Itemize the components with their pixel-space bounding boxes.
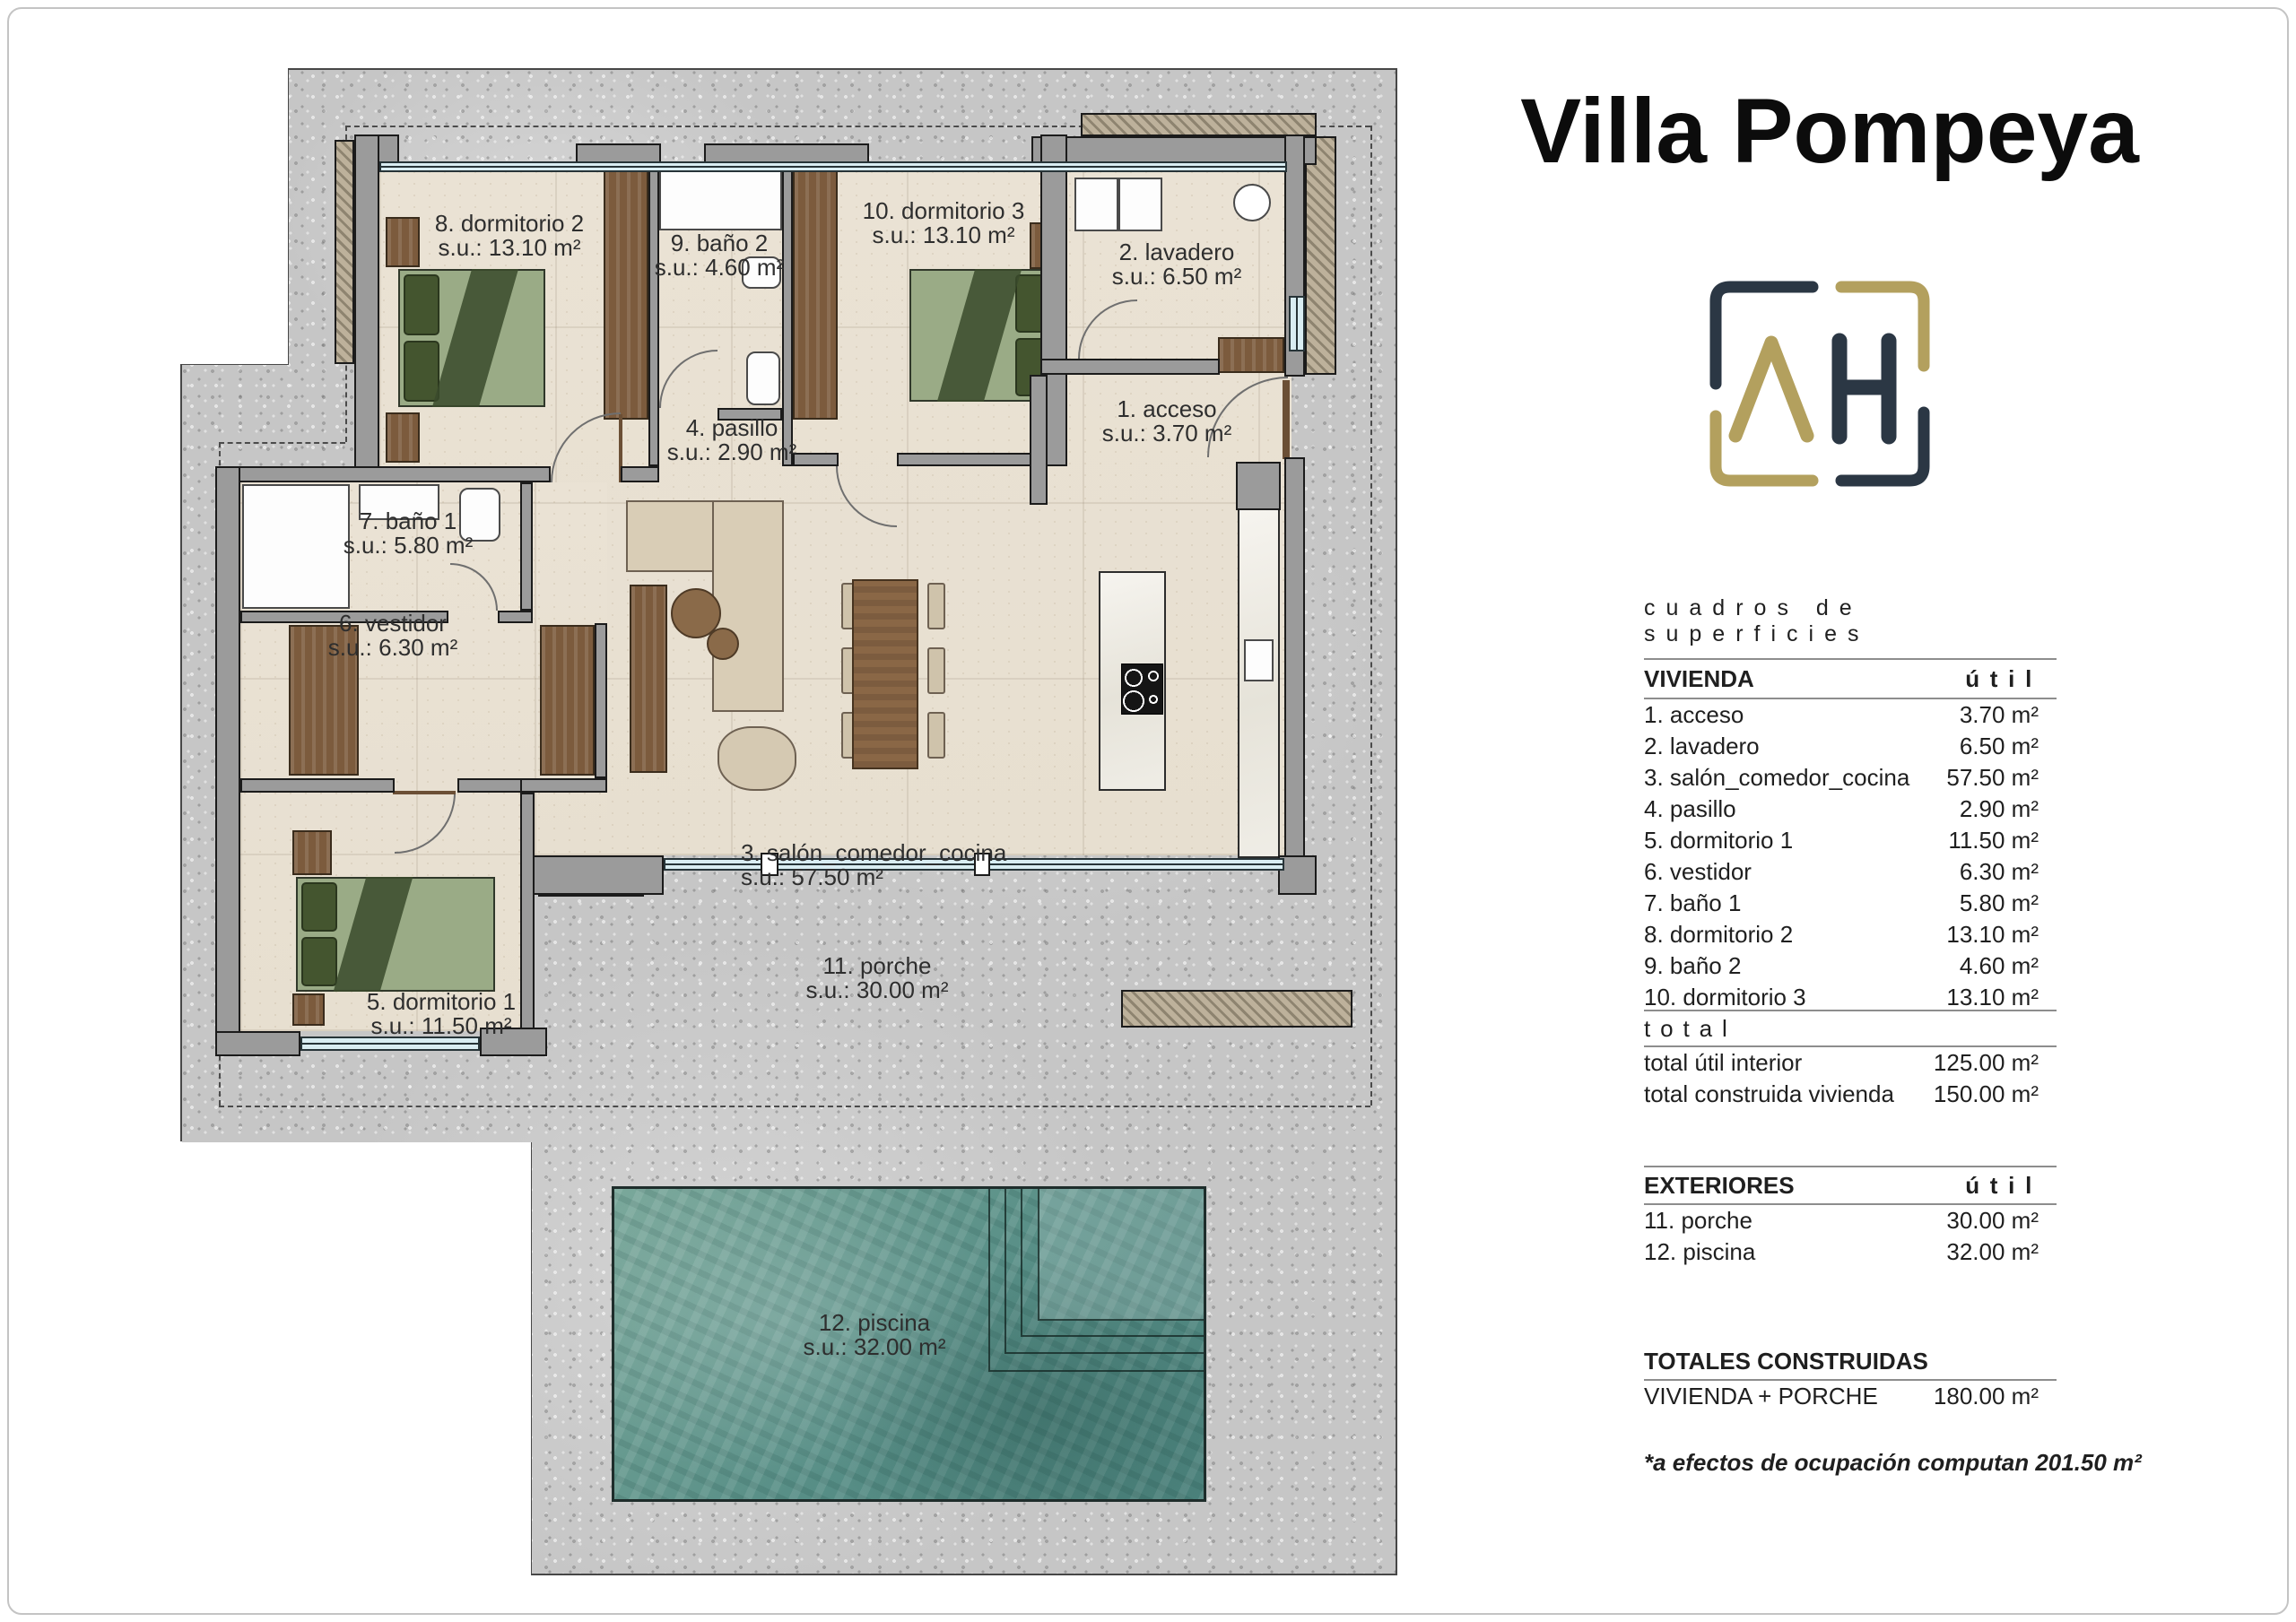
stone-hatch-band — [335, 140, 354, 364]
room-surface: s.u.: 3.70 m² — [1102, 421, 1232, 446]
vivienda-row: 3. salón_comedor_cocina57.50 m² — [1644, 762, 2057, 794]
door-leaf — [1283, 380, 1290, 459]
wall — [1284, 457, 1305, 859]
bed-runner — [334, 877, 413, 992]
sofa-chaise — [712, 500, 784, 712]
room-name: 9. baño 2 — [655, 231, 785, 256]
dining-chair — [927, 583, 945, 629]
room-name: 3. salón_comedor_cocina — [741, 841, 1006, 865]
util-column-header: útil — [1965, 1167, 2057, 1203]
vivienda-row-value: 5.80 m² — [1960, 888, 2057, 919]
wall — [1030, 375, 1048, 505]
laundry-sink — [1233, 184, 1271, 221]
bed-runner — [432, 269, 518, 407]
stone-hatch-band — [1081, 113, 1317, 136]
page-title: Villa Pompeya — [1471, 79, 2188, 184]
room-name: 5. dormitorio 1 — [367, 990, 516, 1014]
room-surface: s.u.: 13.10 m² — [863, 223, 1025, 247]
wall — [621, 466, 659, 482]
totales-header: TOTALES CONSTRUIDAS — [1644, 1343, 2057, 1381]
exteriores-row-label: 12. piscina — [1644, 1236, 1755, 1268]
room-surface: s.u.: 11.50 m² — [367, 1014, 516, 1038]
room-label-pasillo: 4. pasillos.u.: 2.90 m² — [667, 416, 797, 464]
door-leaf — [393, 791, 456, 794]
room-name: 2. lavadero — [1112, 240, 1242, 265]
vivienda-row: 7. baño 15.80 m² — [1644, 888, 2057, 919]
wall — [354, 134, 379, 482]
dining-table — [852, 579, 918, 769]
setback-line — [1370, 126, 1372, 1106]
wall — [498, 611, 533, 623]
vivienda-row-value: 13.10 m² — [1946, 982, 2057, 1013]
surfaces-section-title: cuadros de superficies — [1644, 595, 2057, 660]
exteriores-table: EXTERIORES útil 11. porche30.00 m²12. pi… — [1644, 1166, 2057, 1268]
room-label-salon: 3. salón_comedor_cocinas.u.: 57.50 m² — [741, 841, 1006, 889]
vivienda-row-label: 3. salón_comedor_cocina — [1644, 762, 1909, 794]
totales-row-value: 180.00 m² — [1934, 1381, 2057, 1412]
room-name: 11. porche — [806, 954, 949, 978]
exteriores-row-value: 32.00 m² — [1946, 1236, 2057, 1268]
room-label-dormitorio1: 5. dormitorio 1s.u.: 11.50 m² — [367, 990, 516, 1038]
toilet-bano2 — [746, 351, 780, 405]
vivienda-row: 2. lavadero6.50 m² — [1644, 731, 2057, 762]
total-row: total construida vivienda150.00 m² — [1644, 1079, 2057, 1110]
room-label-piscina: 12. piscinas.u.: 32.00 m² — [804, 1311, 946, 1359]
wall — [897, 453, 1040, 466]
vivienda-row-label: 2. lavadero — [1644, 731, 1760, 762]
setback-line — [219, 1106, 1370, 1107]
wall — [1040, 359, 1220, 375]
wall — [648, 170, 659, 466]
wall — [793, 453, 839, 466]
room-surface: s.u.: 4.60 m² — [655, 256, 785, 280]
vivienda-row: 1. acceso3.70 m² — [1644, 699, 2057, 731]
room-label-bano2: 9. baño 2s.u.: 4.60 m² — [655, 231, 785, 280]
total-row: total útil interior125.00 m² — [1644, 1047, 2057, 1079]
pillow — [404, 341, 439, 402]
window-east — [1289, 296, 1305, 351]
room-surface: s.u.: 30.00 m² — [806, 978, 949, 1002]
vivienda-title: VIVIENDA — [1644, 660, 1754, 698]
bed-runner — [937, 269, 1022, 402]
room-name: 7. baño 1 — [344, 509, 474, 533]
nightstand — [386, 217, 420, 267]
room-surface: s.u.: 57.50 m² — [741, 865, 1006, 889]
wall — [595, 623, 607, 778]
nightstand — [292, 993, 325, 1026]
wardrobe — [604, 170, 648, 420]
totales-table: TOTALES CONSTRUIDAS VIVIENDA + PORCHE180… — [1644, 1343, 2057, 1412]
room-label-lavadero: 2. lavaderos.u.: 6.50 m² — [1112, 240, 1242, 289]
floorplan-poster: 8. dormitorio 2s.u.: 13.10 m²9. baño 2s.… — [0, 0, 2296, 1622]
vivienda-row-label: 4. pasillo — [1644, 794, 1736, 825]
vivienda-row: 8. dormitorio 213.10 m² — [1644, 919, 2057, 950]
room-surface: s.u.: 13.10 m² — [435, 236, 584, 260]
tv-console — [630, 585, 667, 773]
wardrobe — [540, 625, 595, 776]
room-label-dormitorio2: 8. dormitorio 2s.u.: 13.10 m² — [435, 212, 584, 260]
bed — [398, 269, 545, 407]
room-name: 8. dormitorio 2 — [435, 212, 584, 236]
window-strip-north — [379, 161, 1287, 172]
stone-hatch-band — [1305, 136, 1336, 375]
totales-row: VIVIENDA + PORCHE180.00 m² — [1644, 1381, 2057, 1412]
vivienda-row: 4. pasillo2.90 m² — [1644, 794, 2057, 825]
vivienda-row-label: 10. dormitorio 3 — [1644, 982, 1806, 1013]
exteriores-row: 11. porche30.00 m² — [1644, 1205, 2057, 1236]
bed — [296, 877, 495, 992]
vivienda-row-value: 6.30 m² — [1960, 856, 2057, 888]
total-row-value: 125.00 m² — [1934, 1047, 2057, 1079]
exteriores-row: 12. piscina32.00 m² — [1644, 1236, 2057, 1268]
wall — [533, 855, 664, 895]
room-label-dormitorio3: 10. dormitorio 3s.u.: 13.10 m² — [863, 199, 1025, 247]
room-name: 4. pasillo — [667, 416, 797, 440]
stone-hatch-band — [1121, 990, 1352, 1028]
dining-chair — [927, 712, 945, 759]
vivienda-row-value: 6.50 m² — [1960, 731, 2057, 762]
total-row-label: total útil interior — [1644, 1047, 1802, 1079]
vivienda-row-label: 8. dormitorio 2 — [1644, 919, 1793, 950]
exteriores-row-label: 11. porche — [1644, 1205, 1752, 1236]
wall — [215, 466, 240, 1056]
util-column-header: útil — [1965, 660, 2057, 698]
wall — [215, 466, 551, 482]
occupancy-footnote: *a efectos de ocupación computan 201.50 … — [1644, 1449, 2142, 1477]
wall — [215, 1031, 300, 1056]
vivienda-row: 10. dormitorio 313.10 m² — [1644, 982, 2057, 1013]
totales-row-label: VIVIENDA + PORCHE — [1644, 1381, 1878, 1412]
pool-step — [1038, 1189, 1204, 1321]
vivienda-row-label: 6. vestidor — [1644, 856, 1752, 888]
exteriores-title: EXTERIORES — [1644, 1167, 1795, 1203]
room-label-acceso: 1. accesos.u.: 3.70 m² — [1102, 397, 1232, 446]
room-surface: s.u.: 2.90 m² — [667, 440, 797, 464]
room-surface: s.u.: 5.80 m² — [344, 533, 474, 558]
wall — [520, 793, 535, 1031]
cabinet — [1218, 337, 1284, 373]
nightstand — [386, 412, 420, 463]
coffee-table — [707, 628, 739, 660]
wall — [520, 778, 607, 793]
room-surface: s.u.: 6.30 m² — [328, 636, 458, 660]
vivienda-row-label: 7. baño 1 — [1644, 888, 1741, 919]
vivienda-table: VIVIENDA útil 1. acceso3.70 m²2. lavader… — [1644, 658, 2057, 1013]
vivienda-header: VIVIENDA útil — [1644, 660, 2057, 699]
vivienda-row-value: 2.90 m² — [1960, 794, 2057, 825]
kitchen-sink — [1244, 639, 1274, 681]
pouf — [717, 726, 796, 791]
room-label-porche: 11. porches.u.: 30.00 m² — [806, 954, 949, 1002]
room-name: 6. vestidor — [328, 612, 458, 636]
pillow — [404, 274, 439, 335]
vivienda-row-value: 57.50 m² — [1946, 762, 2057, 794]
vivienda-row: 6. vestidor6.30 m² — [1644, 856, 2057, 888]
vivienda-row-value: 4.60 m² — [1960, 950, 2057, 982]
vivienda-row-label: 5. dormitorio 1 — [1644, 825, 1793, 856]
room-label-bano1: 7. baño 1s.u.: 5.80 m² — [344, 509, 474, 558]
wardrobe — [793, 170, 838, 420]
vivienda-row-label: 1. acceso — [1644, 699, 1744, 731]
total-row-value: 150.00 m² — [1934, 1079, 2057, 1110]
washer — [1074, 178, 1118, 231]
wall — [240, 778, 395, 793]
room-surface: s.u.: 32.00 m² — [804, 1335, 946, 1359]
room-label-vestidor: 6. vestidors.u.: 6.30 m² — [328, 612, 458, 660]
brand-logo — [1707, 280, 1931, 488]
headboard — [292, 830, 332, 875]
room-name: 12. piscina — [804, 1311, 946, 1335]
vivienda-row-value: 13.10 m² — [1946, 919, 2057, 950]
dining-chair — [927, 647, 945, 694]
exteriores-row-value: 30.00 m² — [1946, 1205, 2057, 1236]
shower-bano2 — [659, 170, 782, 230]
total-header: total — [1644, 1011, 2057, 1047]
vivienda-row: 5. dormitorio 111.50 m² — [1644, 825, 2057, 856]
pillow — [301, 937, 337, 986]
kitchen-counter — [1238, 508, 1280, 858]
vivienda-row-label: 9. baño 2 — [1644, 950, 1741, 982]
vivienda-row-value: 3.70 m² — [1960, 699, 2057, 731]
wall — [520, 482, 533, 611]
washer — [1118, 178, 1162, 231]
vivienda-row-value: 11.50 m² — [1948, 825, 2057, 856]
cooktop — [1121, 664, 1163, 715]
vivienda-row: 9. baño 24.60 m² — [1644, 950, 2057, 982]
pillow — [301, 882, 337, 932]
setback-line — [219, 442, 345, 444]
shower-bano1 — [242, 484, 350, 609]
room-name: 1. acceso — [1102, 397, 1232, 421]
total-row-label: total construida vivienda — [1644, 1079, 1894, 1110]
wall — [1236, 462, 1281, 510]
room-surface: s.u.: 6.50 m² — [1112, 265, 1242, 289]
total-table: total total útil interior125.00 m²total … — [1644, 1010, 2057, 1110]
exteriores-header: EXTERIORES útil — [1644, 1167, 2057, 1205]
room-name: 10. dormitorio 3 — [863, 199, 1025, 223]
